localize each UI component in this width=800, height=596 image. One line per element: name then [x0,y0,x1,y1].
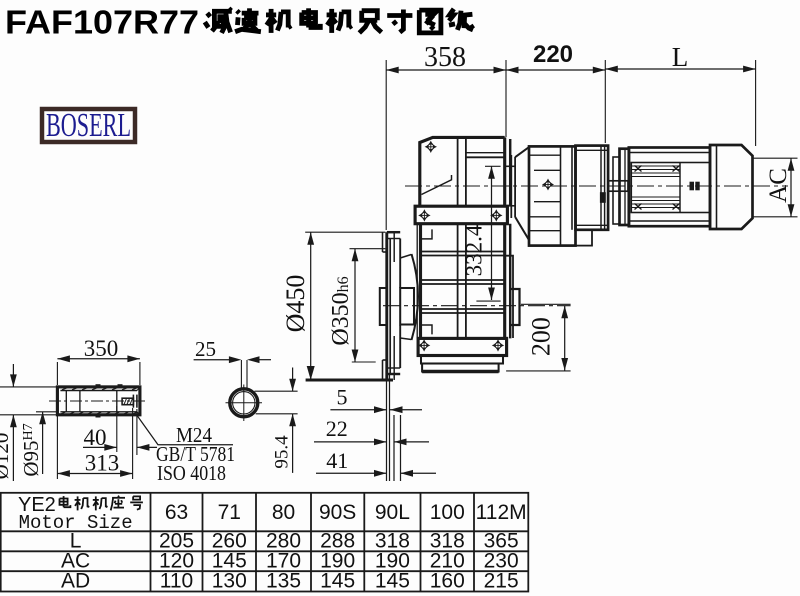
svg-text:L: L [672,42,689,72]
svg-text:41: 41 [326,448,348,473]
svg-text:145: 145 [375,570,410,593]
svg-text:160: 160 [430,570,465,593]
svg-text:AD: AD [61,570,90,593]
svg-text:80: 80 [272,501,295,524]
svg-text:100: 100 [430,501,465,524]
svg-text:358: 358 [424,42,466,73]
svg-text:313: 313 [85,451,120,476]
svg-text:ISO 4018: ISO 4018 [157,461,226,485]
svg-text:5: 5 [337,385,348,410]
svg-text:22: 22 [326,416,348,441]
svg-text:215: 215 [484,570,519,593]
svg-text:112M: 112M [476,501,527,524]
svg-text:220: 220 [533,41,573,68]
svg-text:Ø450: Ø450 [281,275,310,333]
svg-text:350: 350 [84,336,119,361]
svg-text:BOSERL: BOSERL [46,107,131,144]
svg-text:40: 40 [84,425,107,450]
svg-text:145: 145 [320,570,355,593]
svg-text:332.4: 332.4 [462,224,487,276]
svg-text:AC: AC [765,168,792,203]
svg-text:130: 130 [212,570,247,593]
svg-text:Ø120: Ø120 [0,433,13,480]
svg-text:90L: 90L [375,501,410,524]
svg-text:95.4: 95.4 [272,435,293,469]
svg-text:110: 110 [160,570,193,593]
svg-text:FAF107R77: FAF107R77 [5,4,199,41]
svg-text:135: 135 [266,570,301,593]
svg-text:90S: 90S [319,501,356,524]
svg-text:63: 63 [165,501,188,524]
svg-text:25: 25 [195,337,216,361]
svg-text:200: 200 [527,317,556,356]
svg-text:71: 71 [218,501,241,524]
